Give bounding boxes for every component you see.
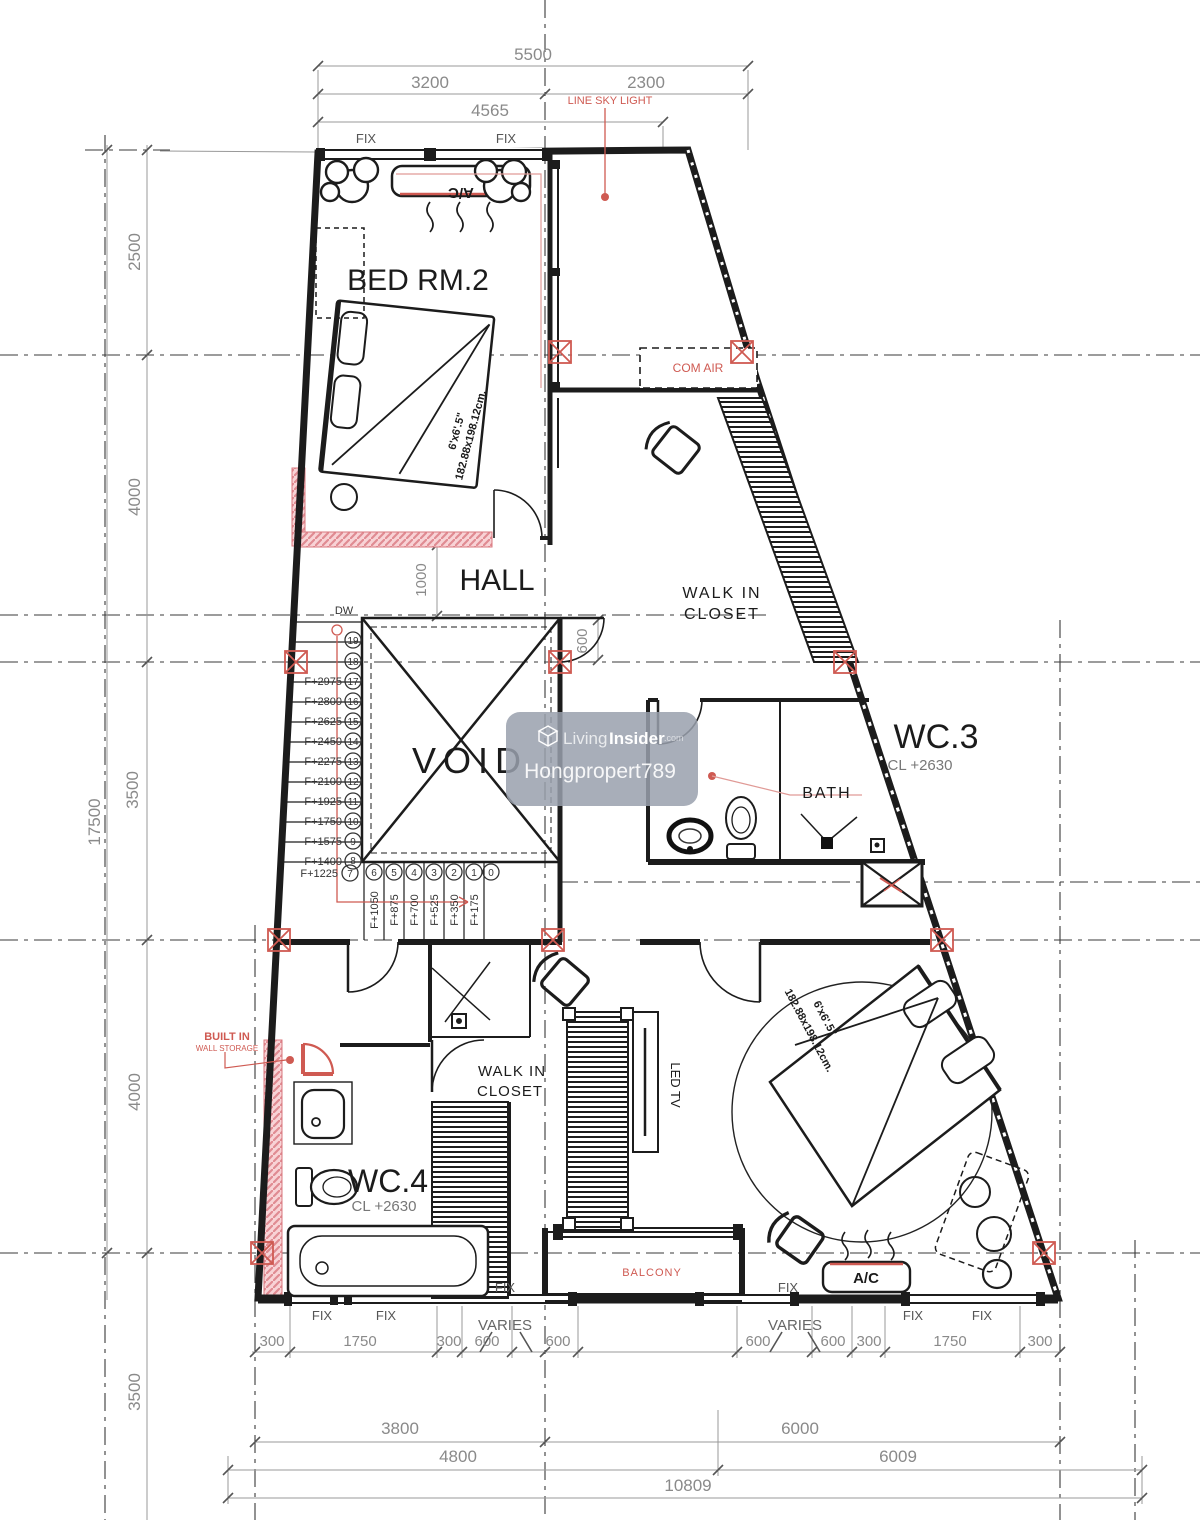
dim-17500: 17500 [85, 798, 104, 845]
svg-text:4: 4 [411, 868, 417, 879]
fix-bot-4: FIX [778, 1280, 799, 1295]
svg-text:7: 7 [347, 869, 353, 880]
svg-text:14: 14 [347, 737, 359, 748]
stool-bottom [763, 1208, 825, 1267]
svg-text:9: 9 [350, 837, 356, 848]
svg-text:F+1575: F+1575 [304, 836, 342, 848]
svg-text:F+1925: F+1925 [304, 796, 342, 808]
led-tv-unit [633, 1012, 658, 1152]
svg-text:19: 19 [347, 636, 359, 647]
dim-2300: 2300 [627, 73, 665, 92]
dimsr-2: 300 [856, 1333, 881, 1350]
walk-in-closet-bot-2: CLOSET [477, 1083, 543, 1100]
shower-wc4 [432, 962, 490, 1028]
room-bath: BATH [802, 785, 851, 802]
room-hall: HALL [459, 564, 534, 597]
dw-label: DW [335, 605, 354, 617]
walk-in-closet-top-2: CLOSET [684, 606, 760, 623]
fix-bot-1: FIX [312, 1308, 333, 1323]
bed-master [770, 966, 1000, 1206]
svg-text:16: 16 [347, 697, 359, 708]
svg-text:18: 18 [347, 657, 359, 668]
dim-3500-bottom: 3500 [125, 1373, 144, 1411]
com-air-label: COM AIR [673, 361, 724, 375]
svg-text:11: 11 [348, 797, 359, 808]
dim-4000-lower: 4000 [125, 1073, 144, 1111]
dimsl-1: 1750 [343, 1333, 376, 1350]
walk-in-closet-bot-1: WALK IN [478, 1063, 546, 1080]
dim-3800: 3800 [381, 1419, 419, 1438]
svg-text:0: 0 [488, 868, 494, 879]
svg-text:10: 10 [347, 817, 359, 828]
dimsl-0: 300 [259, 1333, 284, 1350]
svg-text:F+2625: F+2625 [304, 716, 342, 728]
chair-corridor-bottom [529, 949, 591, 1009]
svg-text:3: 3 [431, 868, 437, 879]
wc3-fixtures [669, 797, 756, 859]
balcony-label: BALCONY [622, 1267, 682, 1279]
watermark-brand-light: Living [563, 729, 607, 748]
ac-label-bottom: A/C [853, 1270, 879, 1287]
built-in-1: BUILT IN [204, 1031, 250, 1043]
watermark: Living Insider .com Hongpropert789 [506, 712, 698, 806]
center-wardrobe [567, 1012, 628, 1230]
room-wc4: WC.4 [348, 1163, 428, 1199]
dim-5500: 5500 [514, 45, 552, 64]
fix-label-top-2: FIX [496, 131, 517, 146]
dim-4800: 4800 [439, 1447, 477, 1466]
svg-text:13: 13 [347, 757, 359, 768]
svg-text:F+525: F+525 [429, 894, 441, 926]
floor-plan-page: 5500 3200 2300 4565 LINE SKY LIGHT FIX F… [0, 0, 1200, 1520]
fix-bot-3: FIX [495, 1280, 516, 1295]
dim-10809: 10809 [664, 1476, 711, 1495]
shaft [862, 862, 922, 906]
svg-text:F+350: F+350 [449, 894, 461, 926]
svg-text:F+2975: F+2975 [304, 676, 342, 688]
svg-text:15: 15 [347, 717, 359, 728]
svg-text:F+2100: F+2100 [304, 776, 342, 788]
walk-in-closet-top-1: WALK IN [682, 585, 761, 602]
dimsr-4: 300 [1027, 1333, 1052, 1350]
fix-label-top-1: FIX [356, 131, 377, 146]
svg-text:F+700: F+700 [409, 894, 421, 926]
wc4-ceiling: CL +2630 [352, 1198, 417, 1215]
svg-text:F+875: F+875 [389, 894, 401, 926]
dim-3200: 3200 [411, 73, 449, 92]
svg-text:8: 8 [350, 856, 356, 867]
led-tv-label: LED TV [668, 1062, 683, 1108]
svg-text:17: 17 [347, 677, 359, 688]
svg-text:6: 6 [371, 868, 377, 879]
watermark-brand-bold: Insider [609, 729, 665, 748]
room-wc3: WC.3 [894, 718, 979, 756]
watermark-username: Hongpropert789 [524, 760, 676, 783]
svg-text:5: 5 [391, 868, 397, 879]
line-sky-light-label: LINE SKY LIGHT [568, 95, 653, 107]
dim-6000: 6000 [781, 1419, 819, 1438]
svg-text:12: 12 [347, 777, 359, 788]
dim-6009: 6009 [879, 1447, 917, 1466]
watermark-brand-tld: .com [664, 733, 684, 743]
svg-text:F+1050: F+1050 [369, 891, 381, 929]
fix-bot-6: FIX [972, 1308, 993, 1323]
dim-4565: 4565 [471, 101, 509, 120]
dim-600: 600 [574, 628, 591, 653]
dimsr-3: 1750 [933, 1333, 966, 1350]
ac-label-top: A/C [448, 184, 474, 201]
svg-text:1: 1 [471, 868, 477, 879]
dim-3500-mid: 3500 [123, 771, 142, 809]
floor-plan-drawing: 5500 3200 2300 4565 LINE SKY LIGHT FIX F… [0, 0, 1200, 1520]
stair-riser-labels: F+2975 F+2800 F+2625 F+2450 F+2275 F+210… [300, 676, 342, 880]
dim-2500: 2500 [125, 233, 144, 271]
varies-right: VARIES [768, 1317, 822, 1334]
dimsr-0: 600 [745, 1333, 770, 1350]
room-bedroom2: BED RM.2 [347, 264, 489, 297]
shower-bath [801, 814, 884, 852]
wardrobes [432, 398, 858, 1298]
svg-text:F+2275: F+2275 [304, 756, 342, 768]
svg-text:F+2800: F+2800 [304, 696, 342, 708]
fix-bot-2: FIX [376, 1308, 397, 1323]
svg-text:F+1225: F+1225 [300, 868, 338, 880]
wc3-ceiling: CL +2630 [888, 757, 953, 774]
svg-text:F+1750: F+1750 [304, 816, 342, 828]
svg-text:2: 2 [451, 868, 457, 879]
dimsl-2: 300 [436, 1333, 461, 1350]
dimsr-1: 600 [820, 1333, 845, 1350]
varies-left: VARIES [478, 1317, 532, 1334]
dimsl-3: 600 [474, 1333, 499, 1350]
svg-text:F+1400: F+1400 [304, 856, 342, 868]
svg-text:F+175: F+175 [469, 894, 481, 926]
built-in-2: WALL STORAGE [196, 1044, 258, 1053]
chair-corridor-top [642, 418, 702, 476]
dim-4000-upper: 4000 [125, 478, 144, 516]
bedside-lamp [331, 484, 357, 510]
fix-bot-5: FIX [903, 1308, 924, 1323]
dim-1000: 1000 [413, 563, 430, 596]
svg-text:F+2450: F+2450 [304, 736, 342, 748]
dimsl-4: 600 [545, 1333, 570, 1350]
